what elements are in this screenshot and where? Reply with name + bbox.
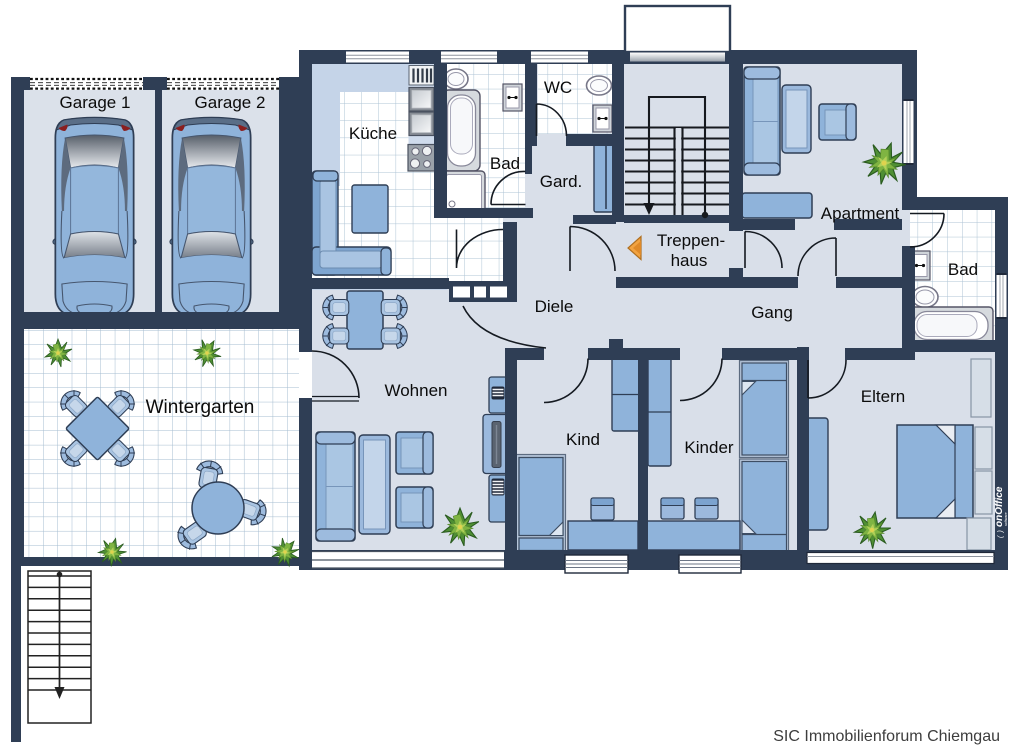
svg-text:( ): ( ) [998,530,1005,538]
svg-text:Küche: Küche [349,124,397,143]
svg-text:Bad: Bad [490,154,520,173]
svg-text:Treppen-: Treppen- [657,231,725,250]
svg-text:Kinder: Kinder [684,438,733,457]
svg-text:haus: haus [671,251,708,270]
svg-text:software: software [1004,512,1008,526]
svg-text:Gang: Gang [751,303,793,322]
svg-text:Wintergarten: Wintergarten [146,397,255,418]
svg-text:Gard.: Gard. [540,172,583,191]
svg-text:Diele: Diele [535,297,574,316]
svg-text:Apartment: Apartment [821,204,900,223]
svg-text:Wohnen: Wohnen [384,381,447,400]
svg-text:WC: WC [544,78,572,97]
svg-text:Garage 2: Garage 2 [195,93,266,112]
svg-text:SIC Immobilienforum Chiemgau: SIC Immobilienforum Chiemgau [773,728,1000,745]
svg-text:Garage 1: Garage 1 [60,93,131,112]
svg-text:Kind: Kind [566,430,600,449]
svg-text:Eltern: Eltern [861,387,905,406]
svg-text:Bad: Bad [948,260,978,279]
